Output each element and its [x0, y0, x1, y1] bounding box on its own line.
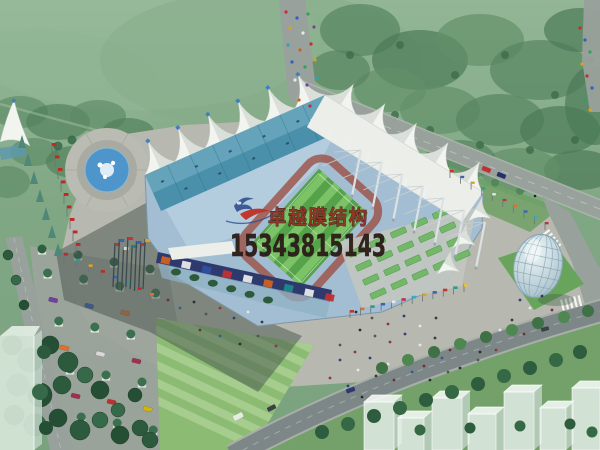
tree	[53, 376, 71, 394]
person-dot	[429, 379, 432, 382]
watermark-company: 卓越膜结构	[268, 205, 369, 229]
person-dot	[529, 307, 532, 310]
person-dot	[199, 329, 202, 332]
person-dot	[167, 299, 170, 302]
pedestrian-dot	[303, 65, 306, 68]
pedestrian-dot	[309, 42, 312, 45]
flag	[70, 218, 75, 221]
street-tree	[587, 427, 598, 438]
mast-base	[454, 255, 456, 258]
street-tree	[515, 421, 526, 432]
street-tree	[506, 324, 518, 336]
pedestrian-dot	[313, 58, 316, 61]
watermark: 卓越膜结构 15343815143	[226, 198, 386, 265]
person-dot	[393, 379, 396, 382]
mast-base	[475, 267, 477, 270]
aerial-rendering: 卓越膜结构 15343815143	[0, 0, 600, 450]
person-dot	[403, 315, 406, 318]
flag	[464, 284, 468, 287]
flag	[412, 296, 416, 299]
person-dot	[411, 371, 414, 374]
forest-tree	[346, 51, 354, 59]
hedge-bush	[263, 297, 273, 304]
street-tree	[565, 419, 576, 430]
forest-tree	[501, 51, 509, 59]
flag	[89, 264, 93, 267]
mast-base	[351, 195, 353, 198]
person-dot	[499, 329, 502, 332]
person-dot	[179, 307, 182, 310]
street-tree	[315, 425, 329, 439]
flag	[145, 239, 150, 242]
person-dot	[359, 329, 362, 332]
flag	[73, 231, 78, 234]
person-dot	[434, 337, 437, 340]
flag-dot	[588, 50, 591, 53]
bush	[491, 179, 499, 187]
person-dot	[219, 307, 222, 310]
pedestrian-dot	[308, 104, 311, 107]
person-dot	[247, 311, 250, 314]
person-dot	[339, 359, 342, 362]
street-tree	[428, 346, 440, 358]
stadium-rendering-image: 卓越膜结构 15343815143	[0, 0, 600, 450]
hedge-bush	[245, 291, 255, 298]
street-tree	[497, 369, 511, 383]
street-tree	[558, 311, 570, 323]
street-tree	[402, 354, 414, 366]
flag	[392, 301, 396, 304]
flag	[350, 310, 354, 313]
person-dot	[479, 351, 482, 354]
building-front	[0, 336, 34, 450]
flag	[150, 293, 154, 296]
person-dot	[374, 335, 377, 338]
person-dot	[347, 385, 350, 388]
flag	[513, 205, 517, 207]
flag	[138, 287, 142, 290]
flag	[402, 298, 406, 301]
tree	[32, 384, 48, 400]
flag	[454, 286, 458, 289]
street-tree	[573, 345, 587, 359]
hedge-bush	[226, 285, 236, 292]
tree	[111, 403, 125, 417]
pedestrian-dot	[315, 76, 318, 79]
person-dot	[257, 335, 260, 338]
flag	[67, 206, 72, 209]
fountain-spray	[98, 163, 103, 168]
parking-tree	[102, 371, 111, 380]
tree	[39, 421, 53, 435]
street-tree	[393, 401, 407, 415]
person-dot	[369, 357, 372, 360]
fountain-spray	[111, 161, 115, 165]
forest-tree	[526, 146, 534, 154]
flag	[61, 181, 66, 184]
person-dot	[389, 341, 392, 344]
person-dot	[219, 335, 222, 338]
street-tree	[532, 317, 544, 329]
flag	[381, 303, 385, 306]
person-dot	[355, 311, 358, 314]
pedestrian-dot	[306, 12, 309, 15]
person-dot	[435, 317, 438, 320]
tree	[54, 142, 63, 151]
tree	[142, 432, 158, 448]
person-dot	[511, 319, 514, 322]
flag	[58, 168, 63, 171]
flag-dot	[588, 108, 591, 111]
person-dot	[275, 345, 278, 348]
flag	[76, 259, 80, 262]
building-front	[540, 408, 566, 450]
flag	[371, 305, 375, 308]
motorbike-dot	[534, 195, 537, 198]
flag	[524, 210, 528, 212]
motorbike-dot	[361, 396, 364, 399]
street-tree	[454, 338, 466, 350]
flag	[471, 182, 475, 184]
flag	[76, 243, 81, 246]
hedge-bush	[171, 269, 181, 276]
flag-dot	[578, 26, 581, 29]
pedestrian-dot	[312, 25, 315, 28]
flag-dot	[590, 86, 593, 89]
flag-dot	[580, 62, 583, 65]
person-dot	[329, 377, 332, 380]
pedestrian-dot	[297, 98, 300, 101]
person-dot	[239, 343, 242, 346]
pedestrian-dot	[290, 60, 293, 63]
pedestrian-dot	[305, 83, 308, 86]
fountain-plaza	[65, 128, 149, 212]
street-tree	[480, 331, 492, 343]
person-dot	[261, 321, 264, 324]
person-dot	[519, 299, 522, 302]
tree	[128, 388, 142, 402]
person-dot	[193, 301, 196, 304]
tree	[19, 300, 29, 310]
street-tree	[367, 409, 381, 423]
street-tree	[419, 393, 433, 407]
person-dot	[477, 359, 480, 362]
person-dot	[459, 367, 462, 370]
person-dot	[523, 333, 526, 336]
forest-canopy	[310, 50, 370, 90]
person-dot	[495, 349, 498, 352]
parking-tree	[138, 378, 147, 387]
tree	[91, 381, 109, 399]
parking-tree	[54, 317, 63, 326]
person-dot	[419, 344, 422, 347]
tree	[111, 426, 129, 444]
street-tree	[523, 361, 537, 375]
tree	[77, 367, 93, 383]
mast-base	[434, 243, 436, 246]
person-dot	[447, 371, 450, 374]
flag	[482, 187, 486, 189]
building-front	[572, 388, 600, 450]
flag	[128, 237, 133, 240]
logo-highlight	[237, 201, 242, 204]
person-dot	[233, 317, 236, 320]
flag	[545, 222, 549, 224]
pedestrian-dot	[293, 78, 296, 81]
person-dot	[205, 313, 208, 316]
parking-tree	[43, 269, 52, 278]
flag	[101, 270, 105, 273]
pedestrian-dot	[286, 43, 289, 46]
parking-tree	[90, 323, 99, 332]
tree	[11, 275, 21, 285]
tree	[37, 345, 51, 359]
parking-tree	[126, 330, 135, 339]
pedestrian-dot	[288, 26, 291, 29]
street-tree	[415, 425, 426, 436]
forest-tree	[571, 136, 579, 144]
person-dot	[375, 375, 378, 378]
person-dot	[551, 309, 554, 312]
flag	[423, 294, 427, 297]
street-tree	[341, 417, 355, 431]
flag	[55, 156, 60, 159]
parking-tree	[38, 245, 47, 254]
person-dot	[357, 369, 360, 372]
person-dot	[387, 323, 390, 326]
person-dot	[404, 333, 407, 336]
person-dot	[339, 344, 342, 347]
flag	[503, 199, 507, 201]
mast-base	[392, 219, 394, 222]
fountain-spray	[103, 175, 107, 179]
person-dot	[371, 317, 374, 320]
forest-tree	[451, 71, 459, 79]
flag	[52, 143, 57, 146]
tree	[92, 412, 108, 428]
watermark-phone: 15343815143	[230, 229, 386, 264]
street-tree	[465, 423, 476, 434]
flag-dot	[585, 74, 588, 77]
mast-base	[413, 231, 415, 234]
person-dot	[541, 295, 544, 298]
pedestrian-dot	[301, 31, 304, 34]
street-tree	[376, 362, 388, 374]
flag	[461, 176, 465, 178]
flag	[119, 239, 124, 242]
flag-dot	[583, 98, 586, 101]
hedge-bush	[189, 274, 199, 281]
mast-base	[372, 207, 374, 210]
flag	[64, 253, 68, 256]
person-dot	[419, 325, 422, 328]
building-front	[364, 402, 394, 450]
building-side	[496, 407, 504, 450]
pedestrian-dot	[284, 10, 287, 13]
flag	[534, 216, 538, 218]
building-front	[432, 398, 462, 450]
street-tree	[549, 353, 563, 367]
tree	[58, 352, 78, 372]
pedestrian-dot	[298, 48, 301, 51]
flag	[443, 289, 447, 292]
hedge-bush	[208, 280, 218, 287]
flag	[433, 291, 437, 294]
tree	[70, 420, 90, 440]
street-tree	[445, 385, 459, 399]
tree	[3, 250, 13, 260]
flag	[450, 170, 454, 172]
forest-tree	[396, 41, 404, 49]
flag	[360, 308, 364, 311]
flag	[64, 193, 69, 196]
person-dot	[449, 349, 452, 352]
pedestrian-dot	[295, 16, 298, 19]
person-dot	[423, 365, 426, 368]
forest-tree	[551, 91, 559, 99]
street-tree	[582, 305, 594, 317]
forest-tree	[476, 141, 484, 149]
flag-dot	[583, 38, 586, 41]
street-tree	[471, 377, 485, 391]
person-dot	[441, 357, 444, 360]
flag	[492, 193, 496, 195]
person-dot	[354, 351, 357, 354]
